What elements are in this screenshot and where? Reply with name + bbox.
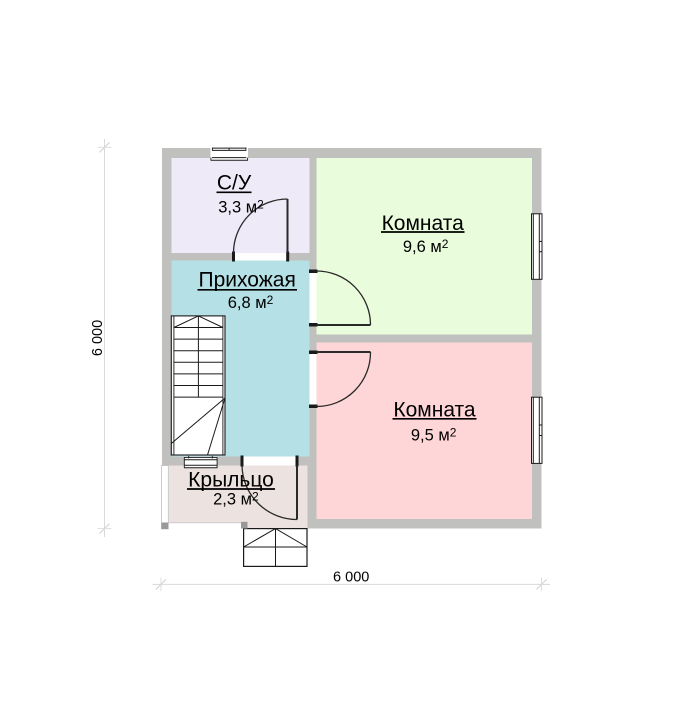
svg-text:6 000: 6 000 (90, 320, 106, 356)
svg-text:6 000: 6 000 (333, 570, 369, 586)
svg-text:Крыльцо: Крыльцо (188, 468, 274, 491)
svg-text:Прихожая: Прихожая (199, 269, 296, 292)
svg-text:С/У: С/У (217, 171, 252, 194)
